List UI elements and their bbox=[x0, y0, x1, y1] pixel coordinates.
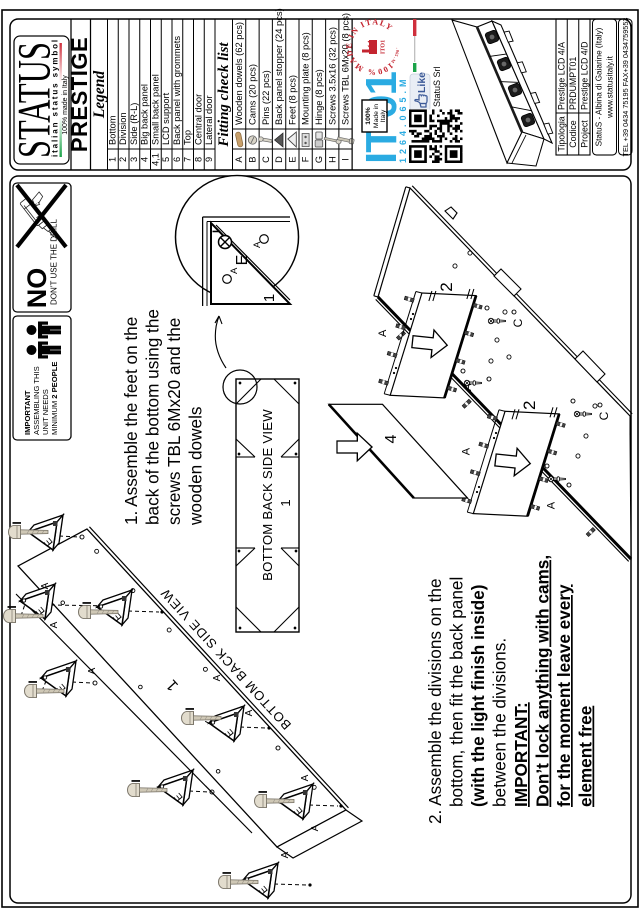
svg-text:Bottom: Bottom bbox=[108, 115, 118, 145]
svg-text:A: A bbox=[460, 447, 472, 455]
svg-text:H: H bbox=[327, 156, 337, 163]
svg-text:2. Assemble the divisions on t: 2. Assemble the divisions on the bbox=[425, 578, 445, 824]
svg-text:C: C bbox=[261, 156, 271, 163]
svg-text:D: D bbox=[274, 156, 284, 163]
svg-text:1: 1 bbox=[278, 499, 293, 506]
svg-text:screws TBL 6Mx20 and the: screws TBL 6Mx20 and the bbox=[164, 318, 184, 525]
svg-text:BOTTOM BACK SIDE VIEW: BOTTOM BACK SIDE VIEW bbox=[260, 409, 275, 581]
svg-text:C: C bbox=[597, 411, 611, 420]
svg-text:A: A bbox=[87, 667, 98, 674]
svg-text:Codice: Codice bbox=[568, 120, 578, 147]
svg-text:www.statusitaly.it: www.statusitaly.it bbox=[606, 55, 615, 118]
svg-text:Cams (20 pcs): Cams (20 pcs) bbox=[247, 64, 258, 125]
svg-text:UNIT NEEDS: UNIT NEEDS bbox=[41, 389, 50, 435]
svg-text:A: A bbox=[244, 709, 255, 716]
svg-text:StatuS - Albina di Gaiarine (I: StatuS - Albina di Gaiarine (Italy) bbox=[595, 27, 604, 146]
svg-text:1264.065.M: 1264.065.M bbox=[398, 75, 408, 163]
svg-text:MINIMUM 2 PEOPLE: MINIMUM 2 PEOPLE bbox=[50, 362, 59, 435]
svg-text:E: E bbox=[234, 255, 251, 266]
svg-text:Central door: Central door bbox=[193, 94, 203, 145]
svg-text:Feet (8 pcs): Feet (8 pcs) bbox=[286, 75, 297, 125]
svg-text:IMPORTANT: IMPORTANT bbox=[23, 390, 32, 435]
svg-text:I: I bbox=[256, 790, 270, 793]
svg-text:1: 1 bbox=[261, 294, 278, 302]
svg-text:Small back panel: Small back panel bbox=[150, 74, 160, 145]
svg-text:Screws 3.5x16 (32 pcs): Screws 3.5x16 (32 pcs) bbox=[326, 27, 337, 125]
svg-text:Back panel with grommets: Back panel with grommets bbox=[172, 36, 182, 145]
svg-text:100%: 100% bbox=[365, 107, 372, 124]
svg-text:A: A bbox=[40, 582, 51, 589]
svg-text:Top: Top bbox=[183, 130, 193, 145]
svg-text:I: I bbox=[26, 680, 40, 683]
svg-text:4,1: 4,1 bbox=[150, 153, 160, 166]
svg-text:7: 7 bbox=[183, 157, 193, 162]
svg-text:Wooden dowels (62 pcs): Wooden dowels (62 pcs) bbox=[233, 22, 244, 125]
svg-text:C: C bbox=[511, 318, 525, 327]
svg-text:8: 8 bbox=[193, 157, 203, 162]
svg-text:A: A bbox=[280, 851, 291, 858]
svg-text:B: B bbox=[248, 156, 258, 162]
svg-text:Prestige LCD 4/A: Prestige LCD 4/A bbox=[557, 42, 567, 110]
svg-text:E: E bbox=[287, 156, 297, 162]
svg-text:I: I bbox=[5, 605, 19, 608]
svg-text:A: A bbox=[545, 501, 557, 509]
svg-text:TEL +39 0434 75195 FAX+39 043: TEL +39 0434 75195 FAX+39 0434759553 bbox=[621, 18, 630, 157]
svg-text:element free: element free bbox=[576, 706, 596, 807]
svg-text:I: I bbox=[80, 601, 94, 604]
svg-text:A: A bbox=[49, 621, 60, 628]
svg-text:ITO1: ITO1 bbox=[380, 40, 387, 54]
svg-text:Hinge (8 pcs): Hinge (8 pcs) bbox=[313, 69, 324, 125]
svg-text:(with the light finish inside): (with the light finish inside) bbox=[468, 585, 488, 807]
svg-text:Fitting check list: Fitting check list bbox=[216, 42, 232, 148]
svg-text:Italy: Italy bbox=[380, 109, 387, 122]
svg-text:back of the bottom using the: back of the bottom using the bbox=[143, 309, 163, 525]
svg-text:G: G bbox=[314, 156, 324, 163]
svg-text:ASSEMBLING THIS: ASSEMBLING THIS bbox=[32, 366, 41, 435]
svg-text:Side (R-L): Side (R-L) bbox=[129, 103, 139, 145]
svg-text:for the moment leave every: for the moment leave every bbox=[554, 584, 574, 807]
svg-text:Lateral door: Lateral door bbox=[204, 95, 214, 145]
svg-text:italian status symbol: italian status symbol bbox=[51, 38, 60, 157]
svg-text:between the divisions.: between the divisions. bbox=[490, 638, 510, 807]
svg-text:A: A bbox=[212, 674, 223, 681]
svg-text:5: 5 bbox=[161, 157, 171, 162]
svg-text:Mounting plate (8 pcs): Mounting plate (8 pcs) bbox=[300, 32, 311, 125]
svg-text:1: 1 bbox=[108, 157, 118, 162]
svg-text:2: 2 bbox=[520, 401, 539, 410]
svg-text:StatuS Srl: StatuS Srl bbox=[432, 66, 442, 107]
svg-text:I: I bbox=[341, 158, 351, 161]
svg-text:Back panel stopper (24 pcs): Back panel stopper (24 pcs) bbox=[273, 8, 284, 125]
svg-text:A: A bbox=[234, 156, 244, 163]
svg-text:F: F bbox=[301, 156, 311, 162]
svg-text:Like: Like bbox=[416, 72, 428, 93]
svg-text:PRDUMPT01: PRDUMPT01 bbox=[568, 57, 578, 110]
svg-text:A: A bbox=[300, 774, 311, 781]
svg-text:1. Assemble the feet on the: 1. Assemble the feet on the bbox=[121, 317, 141, 525]
svg-text:9: 9 bbox=[204, 157, 214, 162]
svg-text:3: 3 bbox=[129, 157, 139, 162]
svg-text:Legend: Legend bbox=[91, 71, 108, 120]
svg-text:4: 4 bbox=[383, 434, 400, 443]
svg-text:Project: Project bbox=[579, 120, 589, 148]
svg-text:LCD support: LCD support bbox=[161, 92, 171, 145]
svg-text:I: I bbox=[183, 707, 197, 710]
svg-text:wooden dowels: wooden dowels bbox=[186, 407, 206, 526]
svg-text:DON’T USE THE DRILL: DON’T USE THE DRILL bbox=[50, 219, 59, 305]
svg-text:bottom, then fit the back pane: bottom, then fit the back panel bbox=[447, 577, 467, 807]
svg-text:2: 2 bbox=[118, 157, 128, 162]
svg-text:2: 2 bbox=[437, 282, 456, 291]
svg-text:Screws TBL 6Mx20 (8 pcs): Screws TBL 6Mx20 (8 pcs) bbox=[340, 13, 351, 125]
svg-text:A: A bbox=[310, 824, 321, 831]
svg-text:A: A bbox=[229, 267, 240, 274]
svg-text:I: I bbox=[211, 230, 223, 233]
svg-text:4: 4 bbox=[140, 157, 150, 162]
svg-text:I: I bbox=[220, 871, 234, 874]
svg-text:A: A bbox=[377, 329, 389, 337]
svg-text:Big back panel: Big back panel bbox=[140, 84, 150, 145]
svg-text:IMPORTANT:: IMPORTANT: bbox=[511, 702, 531, 807]
svg-text:Tipologia: Tipologia bbox=[557, 116, 567, 151]
svg-text:Pins (22 pcs): Pins (22 pcs) bbox=[260, 70, 271, 125]
svg-text:Don’t lock anything with cams,: Don’t lock anything with cams, bbox=[533, 555, 553, 807]
svg-text:I: I bbox=[129, 779, 143, 782]
svg-text:A: A bbox=[252, 241, 263, 248]
svg-text:Prestige LCD 4/D: Prestige LCD 4/D bbox=[579, 42, 589, 110]
svg-text:Made in: Made in bbox=[373, 104, 380, 128]
svg-text:Division: Division bbox=[118, 112, 128, 145]
svg-text:I: I bbox=[10, 521, 24, 524]
svg-text:PRESTIGE: PRESTIGE bbox=[67, 37, 92, 152]
svg-text:6: 6 bbox=[172, 157, 182, 162]
svg-text:NO: NO bbox=[22, 268, 52, 309]
